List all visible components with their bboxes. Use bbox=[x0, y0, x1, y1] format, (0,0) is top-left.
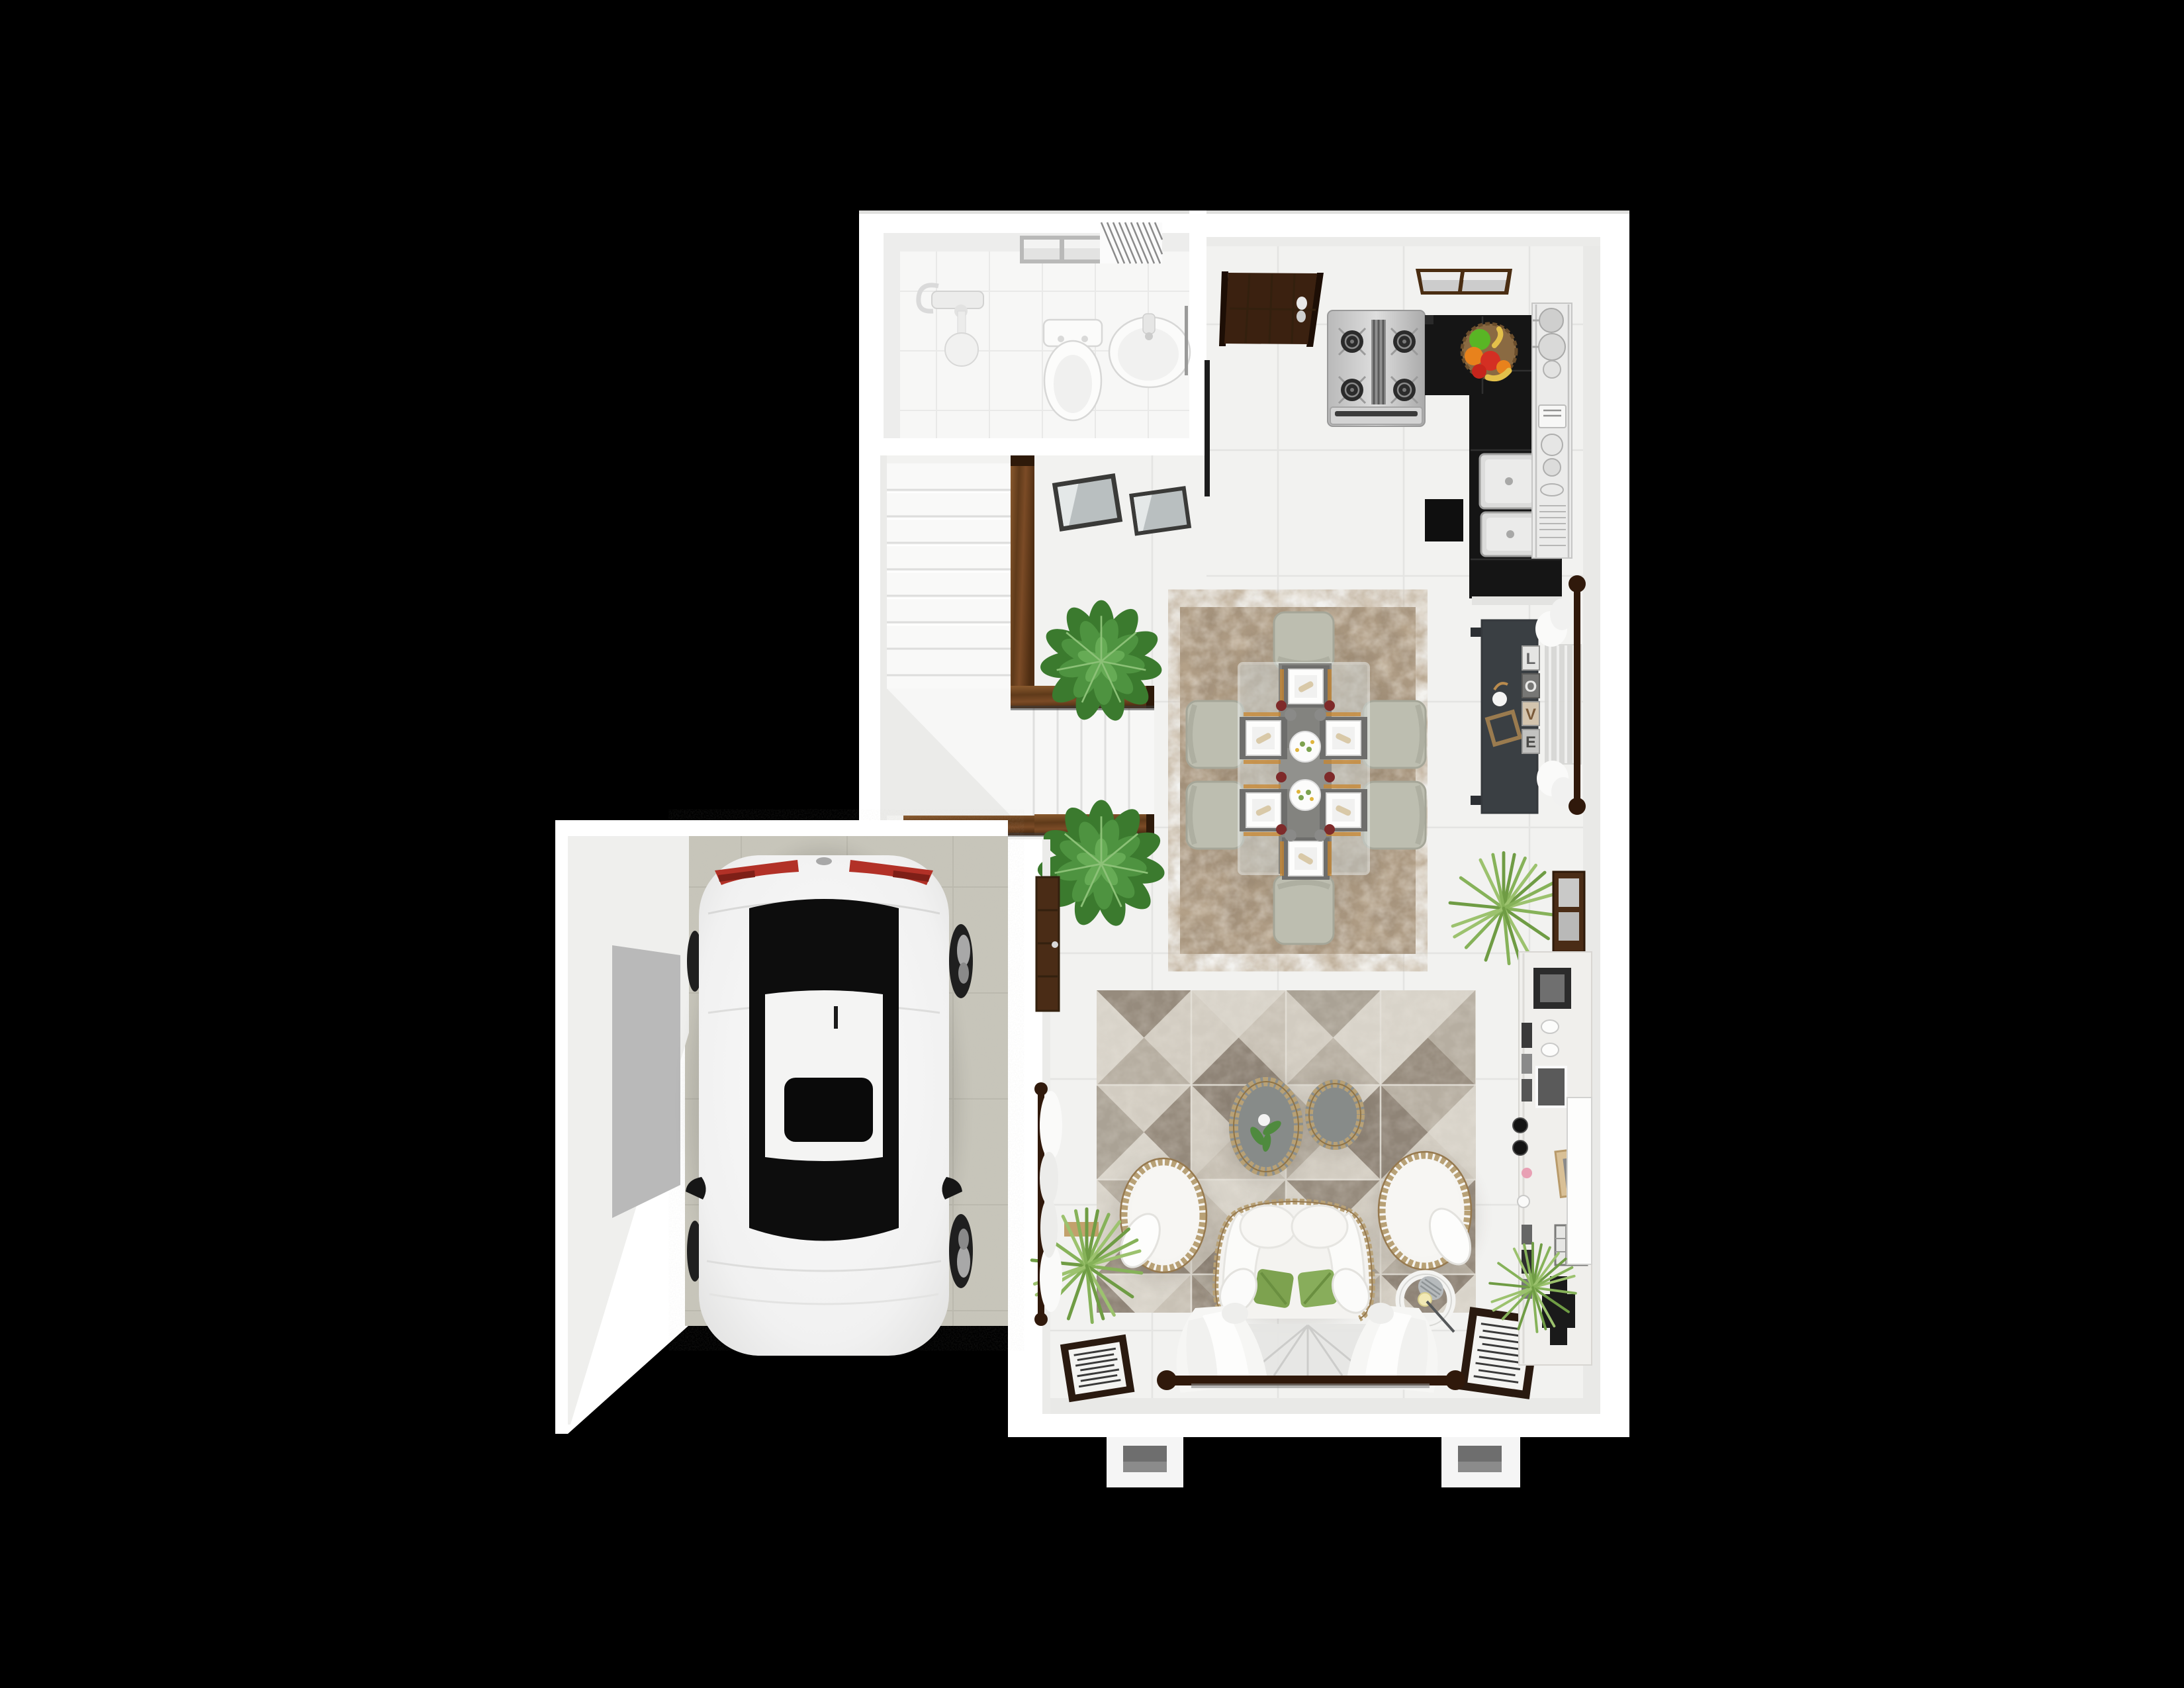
svg-text:E: E bbox=[1525, 733, 1536, 751]
svg-text:L: L bbox=[1526, 650, 1536, 668]
svg-text:O: O bbox=[1525, 678, 1537, 696]
svg-text:V: V bbox=[1525, 706, 1536, 724]
